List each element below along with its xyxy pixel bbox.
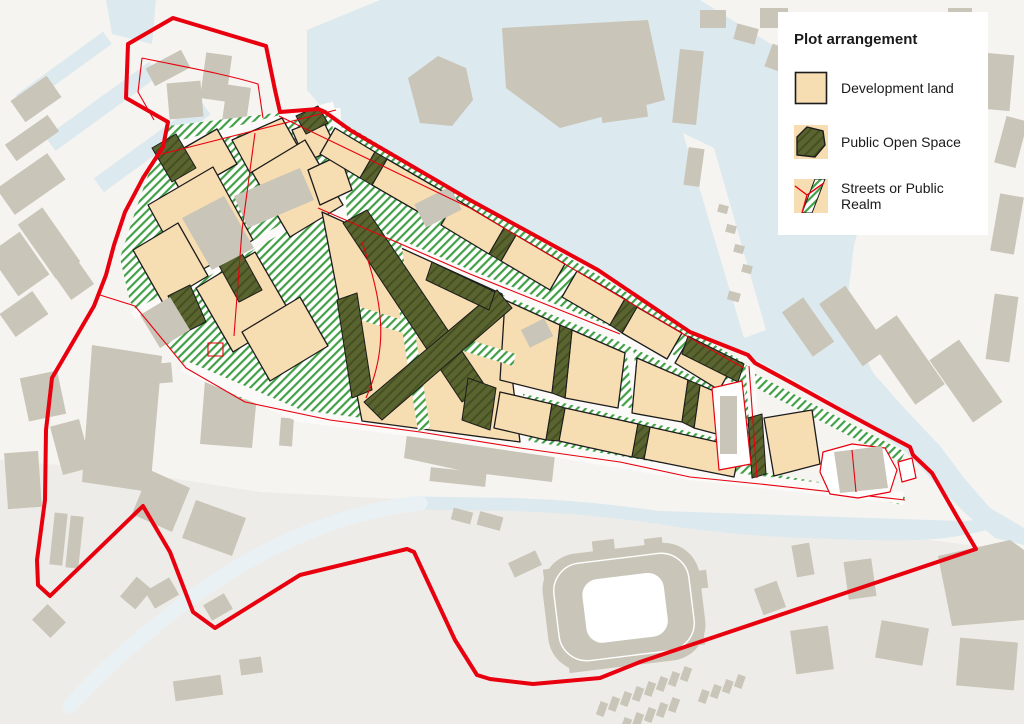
- legend-item-development-land: Development land: [794, 71, 972, 105]
- development-land-swatch: [794, 71, 828, 105]
- legend-label: Streets or Public Realm: [841, 180, 972, 212]
- legend-label: Public Open Space: [841, 134, 961, 150]
- legend-label: Development land: [841, 80, 954, 96]
- legend-item-public-open-space: Public Open Space: [794, 125, 972, 159]
- public-open-space-swatch: [794, 125, 828, 159]
- plot-arrangement-figure: Plot arrangement Development land Public…: [0, 0, 1024, 724]
- legend-panel: Plot arrangement Development land Public…: [778, 12, 988, 235]
- legend-item-streets-public-realm: Streets or Public Realm: [794, 179, 972, 213]
- streets-public-realm-swatch: [794, 179, 828, 213]
- legend-title: Plot arrangement: [794, 32, 972, 49]
